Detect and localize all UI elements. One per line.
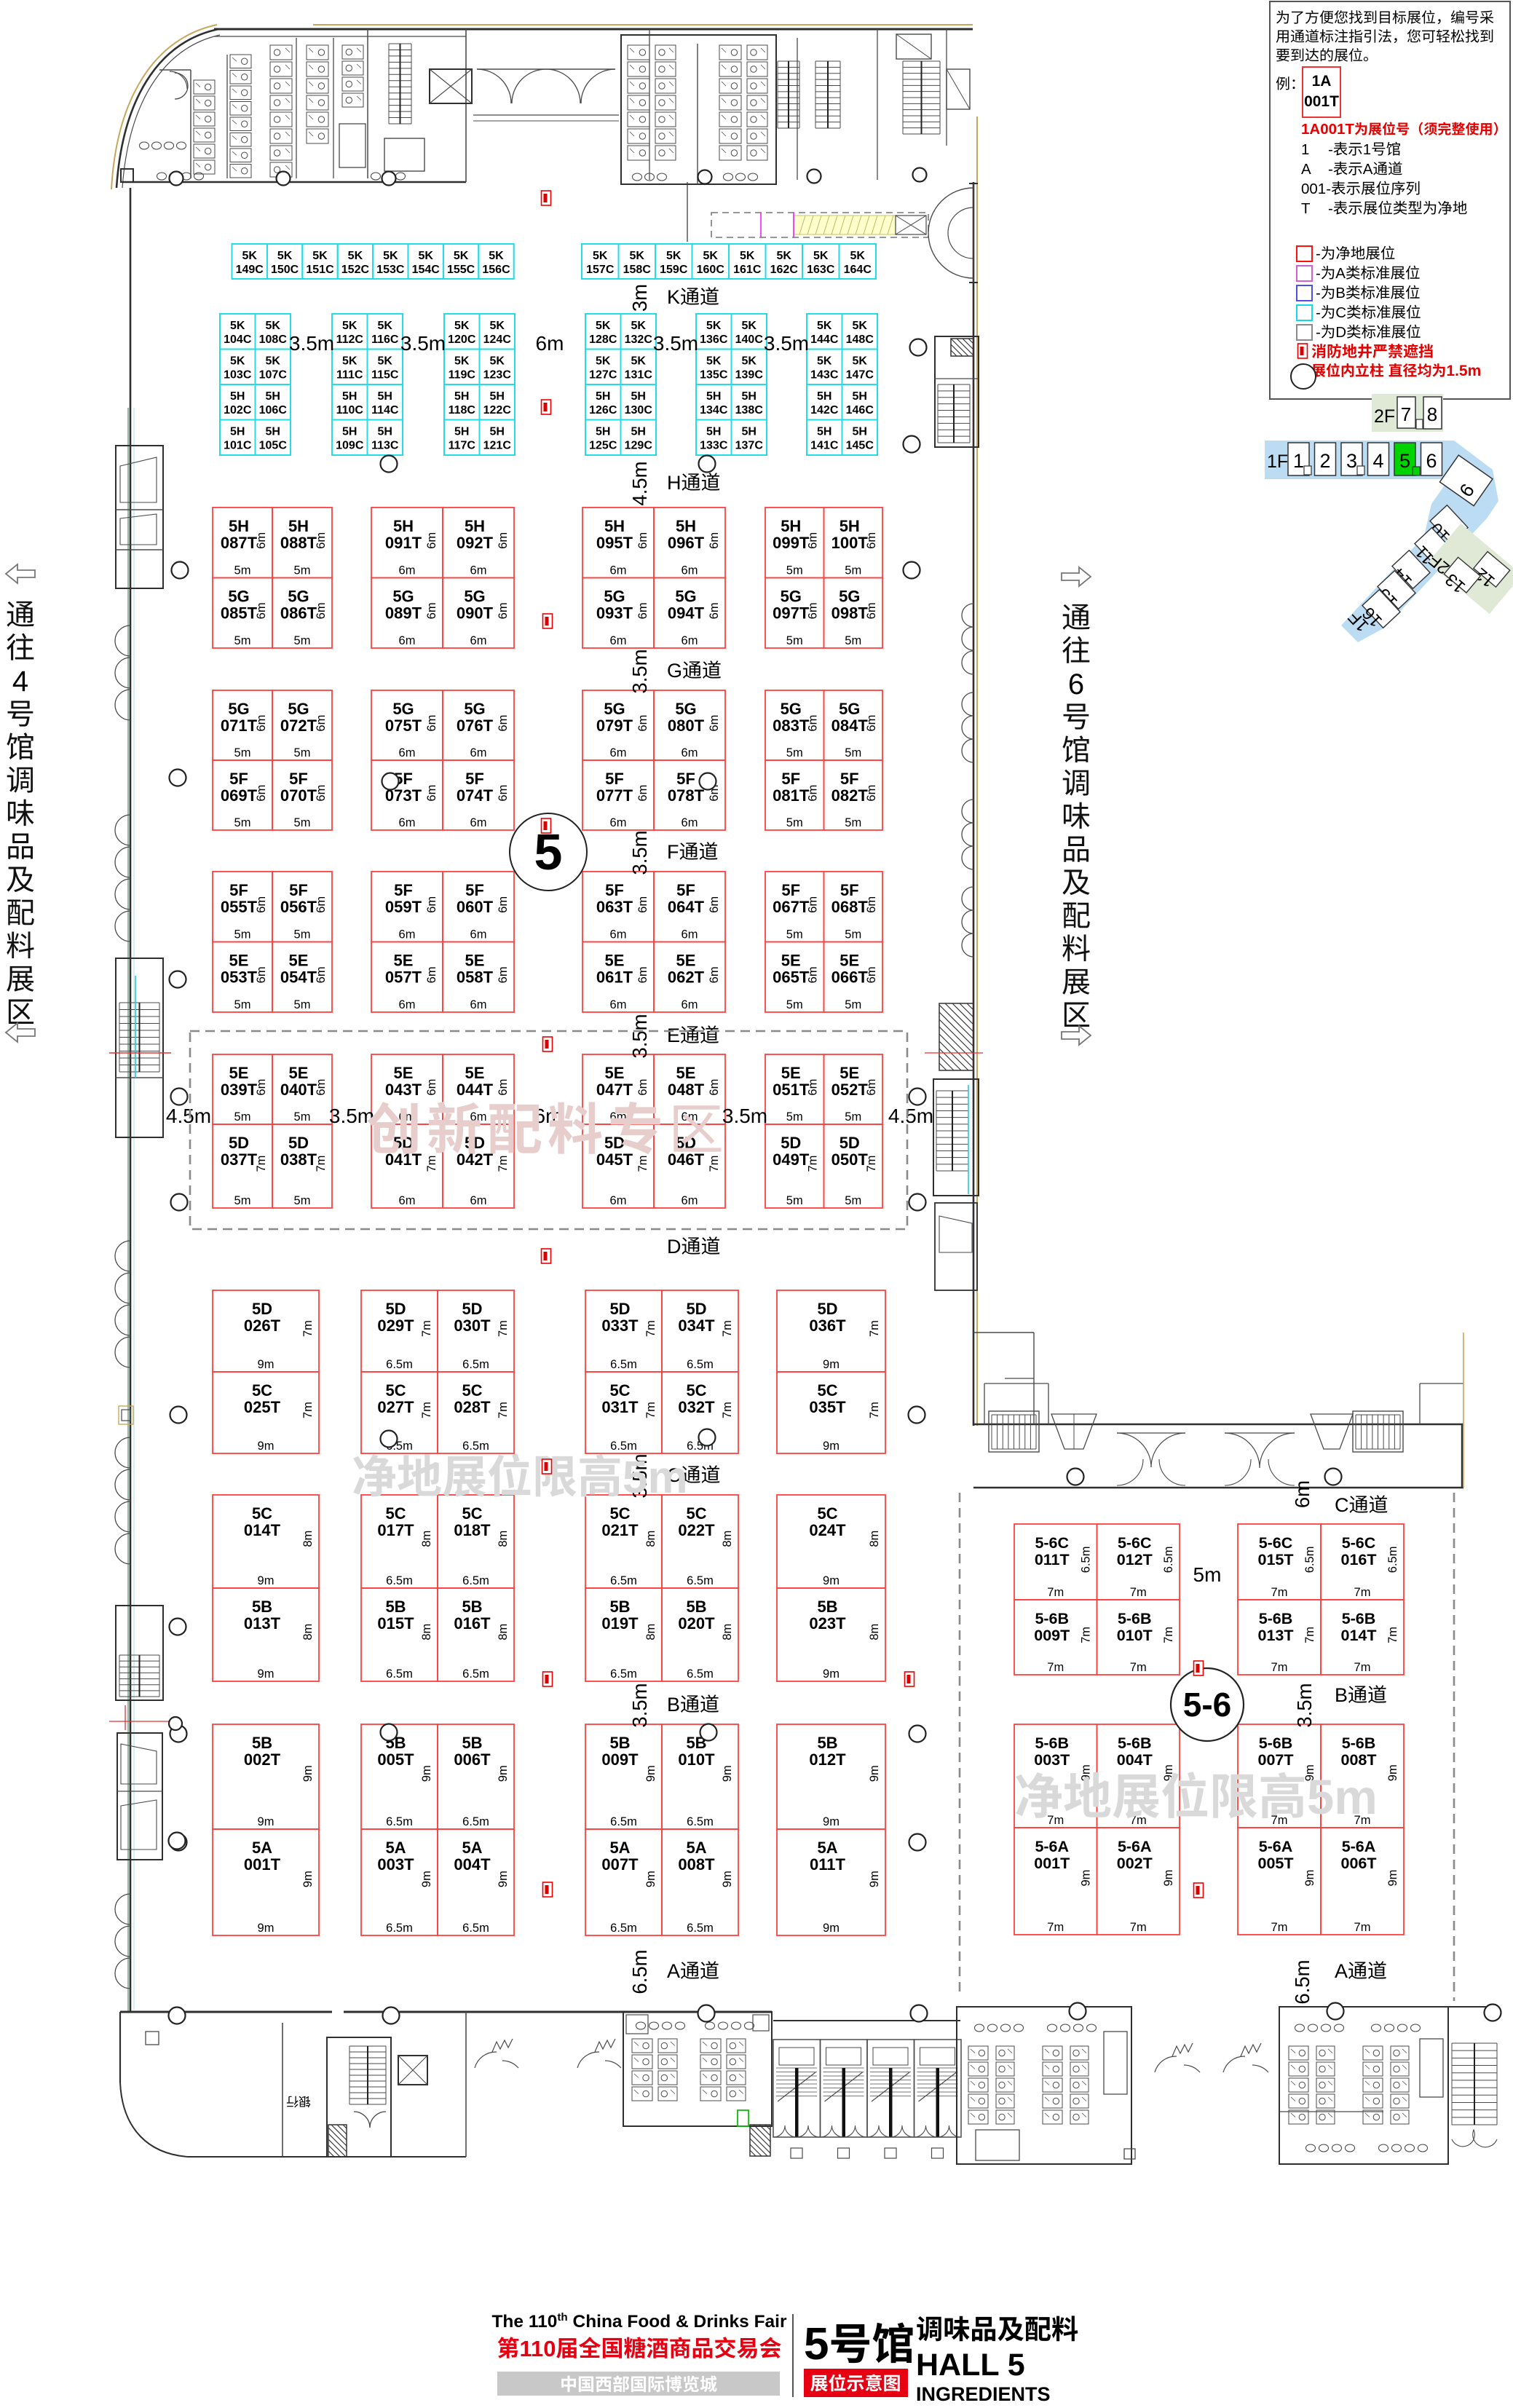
svg-text:7m: 7m bbox=[1303, 1627, 1316, 1643]
svg-text:6m: 6m bbox=[636, 1079, 649, 1096]
svg-text:5K: 5K bbox=[230, 320, 245, 332]
svg-text:6.5m: 6.5m bbox=[610, 1440, 637, 1453]
svg-text:7m: 7m bbox=[420, 1320, 433, 1337]
svg-text:6m: 6m bbox=[807, 785, 820, 802]
svg-text:5m: 5m bbox=[234, 564, 251, 577]
svg-text:128C: 128C bbox=[589, 333, 617, 346]
svg-text:5C: 5C bbox=[462, 1381, 482, 1400]
svg-text:HALL 5: HALL 5 bbox=[916, 2348, 1025, 2383]
svg-text:5K: 5K bbox=[593, 250, 608, 262]
svg-text:6.5m: 6.5m bbox=[1386, 1547, 1399, 1574]
svg-text:7m: 7m bbox=[708, 1156, 721, 1172]
svg-text:010T: 010T bbox=[1117, 1627, 1153, 1644]
svg-text:051T: 051T bbox=[773, 1081, 810, 1099]
svg-text:5K: 5K bbox=[631, 320, 647, 332]
svg-text:090T: 090T bbox=[457, 604, 494, 623]
svg-text:9m: 9m bbox=[868, 1871, 881, 1887]
svg-text:9m: 9m bbox=[258, 1574, 274, 1587]
svg-text:144C: 144C bbox=[810, 333, 839, 346]
svg-text:111C: 111C bbox=[336, 369, 363, 382]
svg-text:6m: 6m bbox=[255, 1079, 268, 1096]
svg-text:003T: 003T bbox=[1034, 1751, 1070, 1769]
svg-text:6.5m: 6.5m bbox=[1080, 1547, 1093, 1574]
svg-text:5K: 5K bbox=[706, 355, 722, 368]
svg-text:5K: 5K bbox=[277, 250, 293, 262]
svg-text:113C: 113C bbox=[371, 440, 399, 452]
svg-text:134C: 134C bbox=[700, 404, 728, 417]
svg-text:6m: 6m bbox=[807, 966, 820, 983]
svg-text:5K: 5K bbox=[630, 250, 645, 262]
svg-text:7m: 7m bbox=[1354, 1586, 1371, 1599]
svg-text:072T: 072T bbox=[280, 717, 317, 735]
svg-text:007T: 007T bbox=[601, 1855, 639, 1874]
svg-text:069T: 069T bbox=[221, 786, 258, 805]
svg-text:5K: 5K bbox=[777, 250, 792, 262]
svg-text:6m: 6m bbox=[636, 602, 649, 619]
svg-text:012T: 012T bbox=[809, 1750, 846, 1769]
svg-text:6.5m: 6.5m bbox=[462, 1574, 489, 1587]
svg-text:099T: 099T bbox=[773, 534, 810, 552]
svg-text:6.5m: 6.5m bbox=[462, 1922, 489, 1935]
svg-text:7m: 7m bbox=[301, 1320, 315, 1337]
svg-text:080T: 080T bbox=[668, 717, 705, 735]
svg-text:3.5m: 3.5m bbox=[722, 1105, 767, 1127]
svg-text:5A: 5A bbox=[385, 1839, 406, 1857]
svg-text:6m: 6m bbox=[682, 928, 698, 942]
svg-text:7m: 7m bbox=[1047, 1586, 1064, 1599]
svg-text:010T: 010T bbox=[678, 1750, 715, 1769]
svg-text:5G: 5G bbox=[464, 588, 485, 606]
svg-text:5G: 5G bbox=[675, 700, 696, 718]
svg-text:5H: 5H bbox=[454, 390, 469, 403]
svg-text:5E: 5E bbox=[605, 1064, 625, 1082]
svg-text:7m: 7m bbox=[1271, 1814, 1288, 1827]
svg-text:5H: 5H bbox=[604, 517, 625, 535]
svg-text:INGREDIENTS: INGREDIENTS bbox=[916, 2383, 1051, 2405]
svg-text:9m: 9m bbox=[497, 1871, 510, 1887]
svg-text:139C: 139C bbox=[735, 369, 764, 382]
svg-text:029T: 029T bbox=[377, 1316, 414, 1335]
svg-text:9m: 9m bbox=[823, 1358, 840, 1371]
svg-text:076T: 076T bbox=[457, 717, 494, 735]
svg-text:063T: 063T bbox=[596, 898, 633, 916]
svg-text:070T: 070T bbox=[280, 786, 317, 805]
svg-text:5K: 5K bbox=[489, 250, 504, 262]
svg-text:6m: 6m bbox=[807, 602, 820, 619]
svg-text:5E: 5E bbox=[840, 952, 859, 970]
svg-text:5K: 5K bbox=[378, 320, 393, 332]
svg-text:5H: 5H bbox=[742, 390, 756, 403]
svg-text:6.5m: 6.5m bbox=[610, 1815, 637, 1828]
svg-text:5B: 5B bbox=[462, 1734, 482, 1752]
svg-text:5m: 5m bbox=[234, 634, 251, 647]
svg-text:6m: 6m bbox=[470, 816, 487, 829]
svg-text:3.5m: 3.5m bbox=[628, 649, 651, 693]
svg-text:6m: 6m bbox=[636, 896, 649, 913]
svg-text:6m: 6m bbox=[425, 896, 438, 913]
svg-text:5H: 5H bbox=[676, 517, 696, 535]
svg-text:6: 6 bbox=[1068, 668, 1084, 700]
svg-text:7m: 7m bbox=[1130, 1921, 1147, 1934]
svg-text:6m: 6m bbox=[470, 998, 487, 1011]
svg-text:136C: 136C bbox=[700, 333, 728, 346]
svg-text:022T: 022T bbox=[678, 1521, 715, 1539]
svg-text:6m: 6m bbox=[497, 896, 510, 913]
svg-text:108C: 108C bbox=[259, 333, 288, 346]
svg-text:9m: 9m bbox=[420, 1765, 433, 1782]
svg-text:6m: 6m bbox=[610, 634, 627, 647]
svg-text:-: - bbox=[1316, 324, 1321, 341]
svg-text:5G: 5G bbox=[781, 588, 802, 606]
svg-text:5K: 5K bbox=[742, 355, 757, 368]
svg-text:106C: 106C bbox=[259, 404, 288, 417]
svg-text:153C: 153C bbox=[376, 264, 405, 276]
svg-text:6m: 6m bbox=[425, 602, 438, 619]
svg-text:5E: 5E bbox=[394, 952, 414, 970]
svg-text:8m: 8m bbox=[497, 1531, 510, 1547]
svg-text:138C: 138C bbox=[735, 404, 764, 417]
svg-text:5E: 5E bbox=[781, 952, 801, 970]
svg-text:095T: 095T bbox=[596, 534, 633, 552]
svg-text:5K: 5K bbox=[850, 250, 866, 262]
svg-text:7m: 7m bbox=[636, 1156, 649, 1172]
svg-text:-: - bbox=[1316, 265, 1321, 282]
svg-text:5F: 5F bbox=[605, 881, 624, 899]
svg-text:-: - bbox=[1328, 200, 1333, 217]
svg-text:097T: 097T bbox=[773, 604, 810, 623]
svg-text:5A: 5A bbox=[817, 1839, 837, 1857]
svg-text:1A: 1A bbox=[1312, 73, 1332, 90]
svg-text:5D: 5D bbox=[817, 1300, 837, 1318]
svg-text:152C: 152C bbox=[341, 264, 370, 276]
svg-text:E: E bbox=[667, 1025, 680, 1046]
svg-text:7m: 7m bbox=[1047, 1661, 1064, 1674]
svg-text:A: A bbox=[667, 1960, 680, 1982]
svg-text:5m: 5m bbox=[845, 928, 861, 942]
svg-text:6m: 6m bbox=[636, 966, 649, 983]
svg-text:5-6B: 5-6B bbox=[1342, 1734, 1376, 1752]
svg-text:5C: 5C bbox=[817, 1504, 837, 1523]
svg-text:007T: 007T bbox=[1257, 1751, 1293, 1769]
svg-text:6m: 6m bbox=[682, 998, 698, 1011]
svg-text:4.5m: 4.5m bbox=[628, 461, 651, 505]
svg-text:6m: 6m bbox=[865, 532, 878, 549]
svg-text:9m: 9m bbox=[823, 1667, 840, 1681]
svg-text:C: C bbox=[1335, 1494, 1349, 1516]
svg-text:5K: 5K bbox=[342, 355, 357, 368]
svg-text:123C: 123C bbox=[483, 369, 512, 382]
svg-text:9m: 9m bbox=[258, 1667, 274, 1681]
svg-text:6m: 6m bbox=[708, 1079, 721, 1096]
svg-text:F: F bbox=[667, 841, 679, 863]
svg-text:011T: 011T bbox=[1035, 1551, 1070, 1568]
svg-text:2: 2 bbox=[1319, 450, 1330, 472]
svg-text:8m: 8m bbox=[868, 1531, 881, 1547]
svg-text:9m: 9m bbox=[721, 1871, 734, 1887]
svg-text:6m: 6m bbox=[865, 1079, 878, 1096]
svg-text:5H: 5H bbox=[266, 390, 280, 403]
svg-text:5H: 5H bbox=[631, 426, 646, 438]
svg-text:D: D bbox=[1335, 324, 1346, 341]
svg-text:5C: 5C bbox=[609, 1504, 630, 1523]
svg-text:054T: 054T bbox=[280, 968, 317, 987]
svg-text:6m: 6m bbox=[399, 564, 416, 577]
svg-text:9m: 9m bbox=[497, 1765, 510, 1782]
svg-text:100T: 100T bbox=[831, 534, 869, 552]
svg-text:5K: 5K bbox=[817, 355, 832, 368]
svg-text:5F: 5F bbox=[676, 881, 695, 899]
svg-text:6.5m: 6.5m bbox=[462, 1815, 489, 1828]
svg-text:1: 1 bbox=[1363, 141, 1371, 158]
svg-text:053T: 053T bbox=[221, 968, 258, 987]
svg-text:5E: 5E bbox=[840, 1064, 859, 1082]
svg-text:3.5m: 3.5m bbox=[764, 332, 809, 355]
svg-text:065T: 065T bbox=[773, 968, 810, 987]
svg-text:T: T bbox=[1301, 200, 1311, 217]
svg-text:5F: 5F bbox=[289, 881, 308, 899]
svg-text:7m: 7m bbox=[865, 1156, 878, 1172]
svg-text:7m: 7m bbox=[868, 1320, 881, 1337]
svg-text:5E: 5E bbox=[605, 952, 625, 970]
svg-text:031T: 031T bbox=[601, 1398, 639, 1416]
svg-text:154C: 154C bbox=[412, 264, 441, 276]
svg-text:6m: 6m bbox=[399, 634, 416, 647]
svg-text:012T: 012T bbox=[1117, 1551, 1153, 1568]
svg-text:5B: 5B bbox=[609, 1734, 630, 1752]
svg-text:132C: 132C bbox=[625, 333, 653, 346]
svg-text:5m: 5m bbox=[234, 746, 251, 759]
svg-text:015T: 015T bbox=[377, 1614, 414, 1633]
svg-text:6m: 6m bbox=[470, 1194, 487, 1207]
svg-text:030T: 030T bbox=[454, 1316, 491, 1335]
svg-text:5K: 5K bbox=[666, 250, 682, 262]
svg-text:5K: 5K bbox=[266, 355, 281, 368]
svg-text:6m: 6m bbox=[708, 896, 721, 913]
svg-text:130C: 130C bbox=[625, 404, 653, 417]
svg-text:075T: 075T bbox=[385, 717, 422, 735]
svg-text:121C: 121C bbox=[483, 440, 512, 452]
svg-text:006T: 006T bbox=[1340, 1855, 1376, 1872]
svg-text:009T: 009T bbox=[601, 1750, 639, 1769]
svg-text:9m: 9m bbox=[1386, 1764, 1399, 1781]
svg-text:5G: 5G bbox=[839, 588, 860, 606]
svg-text:5m: 5m bbox=[845, 1110, 861, 1124]
svg-text:5K: 5K bbox=[742, 320, 757, 332]
svg-text:B: B bbox=[1335, 1684, 1348, 1706]
svg-text:5K: 5K bbox=[383, 250, 398, 262]
svg-text:5-6B: 5-6B bbox=[1259, 1610, 1293, 1627]
svg-text:004T: 004T bbox=[454, 1855, 491, 1874]
svg-text:9m: 9m bbox=[644, 1765, 657, 1782]
svg-text:149C: 149C bbox=[236, 264, 264, 276]
svg-text:4.5m: 4.5m bbox=[166, 1105, 211, 1127]
svg-text:5H: 5H bbox=[840, 517, 860, 535]
svg-text:008T: 008T bbox=[678, 1855, 715, 1874]
svg-text:081T: 081T bbox=[773, 786, 810, 805]
svg-text:6m: 6m bbox=[315, 532, 328, 549]
svg-text:5B: 5B bbox=[609, 1598, 630, 1616]
svg-text:6m: 6m bbox=[708, 532, 721, 549]
svg-text:6m: 6m bbox=[865, 602, 878, 619]
svg-text:9m: 9m bbox=[301, 1765, 315, 1782]
svg-text:4.5m: 4.5m bbox=[888, 1105, 933, 1127]
svg-text:5H: 5H bbox=[596, 390, 610, 403]
svg-text:5H: 5H bbox=[378, 426, 392, 438]
svg-text:017T: 017T bbox=[377, 1521, 414, 1539]
svg-text:032T: 032T bbox=[678, 1398, 715, 1416]
svg-text:6m: 6m bbox=[865, 715, 878, 732]
svg-text:6m: 6m bbox=[399, 928, 416, 942]
svg-text:5E: 5E bbox=[676, 952, 696, 970]
svg-text:5K: 5K bbox=[596, 355, 611, 368]
svg-text:6m: 6m bbox=[497, 966, 510, 983]
svg-text:044T: 044T bbox=[457, 1081, 494, 1099]
svg-text:013T: 013T bbox=[244, 1614, 281, 1633]
svg-text:039T: 039T bbox=[221, 1081, 258, 1099]
svg-text:6m: 6m bbox=[425, 785, 438, 802]
svg-text:5F: 5F bbox=[229, 881, 248, 899]
svg-text:5A: 5A bbox=[686, 1839, 706, 1857]
svg-text:014T: 014T bbox=[1340, 1627, 1376, 1644]
svg-text:5D: 5D bbox=[252, 1300, 272, 1318]
svg-text:5C: 5C bbox=[252, 1504, 272, 1523]
svg-text:9m: 9m bbox=[420, 1871, 433, 1887]
svg-text:3: 3 bbox=[1346, 450, 1357, 472]
svg-text:5G: 5G bbox=[604, 588, 625, 606]
svg-text:028T: 028T bbox=[454, 1398, 491, 1416]
svg-text:6.5m: 6.5m bbox=[687, 1815, 714, 1828]
svg-text:5K: 5K bbox=[418, 250, 433, 262]
svg-text:8m: 8m bbox=[644, 1531, 657, 1547]
svg-text:9m: 9m bbox=[301, 1871, 315, 1887]
svg-text:6.5m: 6.5m bbox=[462, 1440, 489, 1453]
svg-text:140C: 140C bbox=[735, 333, 764, 346]
svg-text:5H: 5H bbox=[706, 390, 721, 403]
svg-text:5-6B: 5-6B bbox=[1118, 1610, 1152, 1627]
svg-text:5H: 5H bbox=[230, 390, 245, 403]
svg-text:8: 8 bbox=[1427, 403, 1437, 425]
svg-text:6m: 6m bbox=[636, 715, 649, 732]
svg-text:5m: 5m bbox=[234, 998, 251, 1011]
svg-text:115C: 115C bbox=[371, 369, 399, 382]
svg-text:6m: 6m bbox=[865, 785, 878, 802]
svg-text:6m: 6m bbox=[315, 602, 328, 619]
svg-text:003T: 003T bbox=[377, 1855, 414, 1874]
svg-text:5F: 5F bbox=[781, 770, 800, 788]
svg-text:6m: 6m bbox=[255, 896, 268, 913]
svg-text:5C: 5C bbox=[609, 1381, 630, 1400]
svg-text:8m: 8m bbox=[301, 1531, 315, 1547]
svg-text:145C: 145C bbox=[846, 440, 874, 452]
svg-text:6m: 6m bbox=[315, 966, 328, 983]
svg-text:5H: 5H bbox=[817, 426, 831, 438]
svg-text:B: B bbox=[1335, 285, 1346, 301]
svg-text:5D: 5D bbox=[609, 1300, 630, 1318]
svg-text:6.5m: 6.5m bbox=[687, 1922, 714, 1935]
svg-text:034T: 034T bbox=[678, 1316, 715, 1335]
svg-text:5F: 5F bbox=[465, 770, 484, 788]
svg-text:131C: 131C bbox=[625, 369, 653, 382]
svg-text:082T: 082T bbox=[831, 786, 869, 805]
svg-text:5C: 5C bbox=[686, 1504, 706, 1523]
svg-text:The 110: The 110 bbox=[491, 2312, 557, 2332]
svg-text:3.5m: 3.5m bbox=[628, 1683, 651, 1727]
svg-text:005T: 005T bbox=[377, 1750, 414, 1769]
svg-text:5H: 5H bbox=[342, 426, 357, 438]
svg-text:5B: 5B bbox=[462, 1598, 482, 1616]
svg-text:126C: 126C bbox=[589, 404, 617, 417]
svg-text:5H: 5H bbox=[631, 390, 646, 403]
svg-text:036T: 036T bbox=[809, 1316, 846, 1335]
svg-text:5K: 5K bbox=[631, 355, 647, 368]
svg-text:7m: 7m bbox=[1080, 1627, 1093, 1643]
svg-text:5H: 5H bbox=[853, 390, 867, 403]
svg-text:5-6B: 5-6B bbox=[1342, 1610, 1376, 1627]
svg-text:5m: 5m bbox=[845, 816, 861, 829]
svg-text:6m: 6m bbox=[470, 634, 487, 647]
svg-text:7m: 7m bbox=[1354, 1661, 1371, 1674]
svg-text:5m: 5m bbox=[786, 1110, 803, 1124]
svg-text:5D: 5D bbox=[604, 1134, 625, 1152]
svg-text:5E: 5E bbox=[676, 1064, 696, 1082]
svg-text:6m: 6m bbox=[497, 1079, 510, 1096]
svg-text:6m: 6m bbox=[682, 564, 698, 577]
svg-text:6: 6 bbox=[1426, 450, 1437, 472]
svg-text:5m: 5m bbox=[786, 746, 803, 759]
svg-text:6.5m: 6.5m bbox=[628, 1949, 651, 1994]
svg-text:7m: 7m bbox=[301, 1402, 315, 1418]
svg-text:125C: 125C bbox=[589, 440, 617, 452]
svg-text:7m: 7m bbox=[420, 1402, 433, 1418]
svg-text:5m: 5m bbox=[294, 1110, 311, 1124]
svg-text:122C: 122C bbox=[483, 404, 512, 417]
svg-text:6m: 6m bbox=[399, 816, 416, 829]
svg-text:102C: 102C bbox=[224, 404, 252, 417]
svg-text:5F: 5F bbox=[605, 770, 624, 788]
svg-text:4: 4 bbox=[12, 666, 28, 698]
svg-text:019T: 019T bbox=[601, 1614, 639, 1633]
svg-text:7m: 7m bbox=[1047, 1921, 1064, 1934]
svg-text:5m: 5m bbox=[294, 928, 311, 942]
svg-text:5G: 5G bbox=[464, 700, 485, 718]
svg-text:016T: 016T bbox=[1340, 1551, 1376, 1568]
svg-text:-: - bbox=[1316, 285, 1321, 301]
svg-text:147C: 147C bbox=[846, 369, 874, 382]
svg-text:6m: 6m bbox=[807, 532, 820, 549]
svg-text:096T: 096T bbox=[668, 534, 705, 552]
svg-text:049T: 049T bbox=[773, 1150, 810, 1169]
svg-text:6.5m: 6.5m bbox=[610, 1922, 637, 1935]
svg-text:3.5m: 3.5m bbox=[1293, 1683, 1316, 1727]
svg-text:6.5m: 6.5m bbox=[687, 1667, 714, 1681]
svg-text:5m: 5m bbox=[294, 746, 311, 759]
svg-text:004T: 004T bbox=[1117, 1751, 1153, 1769]
svg-text:5H: 5H bbox=[490, 390, 505, 403]
svg-text:6m: 6m bbox=[255, 532, 268, 549]
svg-text:6m: 6m bbox=[708, 715, 721, 732]
svg-text:104C: 104C bbox=[224, 333, 252, 346]
svg-text:071T: 071T bbox=[221, 717, 258, 735]
svg-text:083T: 083T bbox=[773, 717, 810, 735]
svg-text:059T: 059T bbox=[385, 898, 422, 916]
svg-text:5D: 5D bbox=[385, 1300, 406, 1318]
svg-text:013T: 013T bbox=[1257, 1627, 1293, 1644]
svg-text:9m: 9m bbox=[1386, 1870, 1399, 1887]
svg-text:6m: 6m bbox=[255, 966, 268, 983]
svg-text:8m: 8m bbox=[420, 1624, 433, 1641]
svg-text:7m: 7m bbox=[1354, 1921, 1371, 1934]
svg-text:5K: 5K bbox=[378, 355, 393, 368]
